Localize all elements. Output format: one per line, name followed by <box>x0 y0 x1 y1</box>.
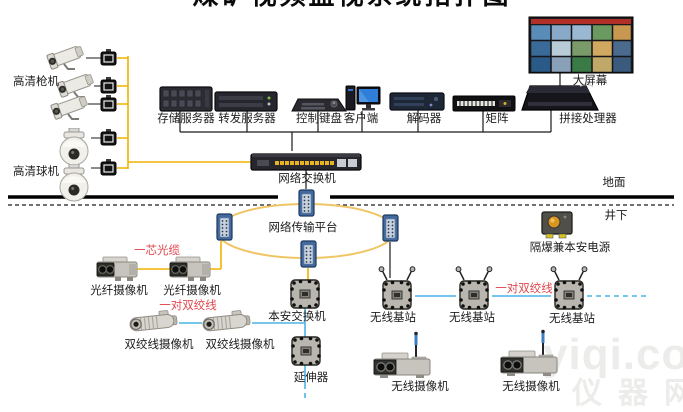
flameproof-power-label: 隔爆兼本安电源 <box>530 242 611 255</box>
wireless-camera-icon <box>372 331 434 383</box>
matrix-label: 矩阵 <box>486 113 509 126</box>
media-converter-icon <box>100 77 117 95</box>
storage-server-label: 存储服务器 <box>157 113 215 126</box>
underground-zone-label: 井下 <box>605 210 628 223</box>
industrial-switch-icon <box>298 189 315 217</box>
wireless-base-station-label: 无线基站 <box>549 313 595 326</box>
hd-bullet-camera-icon <box>48 92 94 122</box>
twisted-pair-camera-label: 双绞线摄像机 <box>206 339 275 352</box>
media-converter-icon <box>100 159 117 177</box>
twisted-pair-cable-label: 一对双绞线 <box>159 300 217 313</box>
wireless-base-station-icon <box>547 266 591 312</box>
hd-bullet-camera-icon <box>44 42 90 72</box>
client-label: 客户端 <box>344 113 379 126</box>
wireless-base-station-icon <box>452 266 496 312</box>
control-keyboard-icon <box>288 95 348 113</box>
control-keyboard-label: 控制键盘 <box>296 113 342 126</box>
hd-dome-camera-icon <box>57 164 91 204</box>
intrinsically-safe-switch-icon <box>287 277 323 311</box>
fiber-camera-icon <box>95 254 139 284</box>
decoder-icon <box>388 90 446 113</box>
hd-dome-camera-icon <box>57 128 91 168</box>
fiber-camera-icon <box>168 254 212 284</box>
hd-dome-camera-label: 高清球机 <box>13 166 59 179</box>
client-pc-icon <box>345 83 381 113</box>
video-wall-icon <box>528 16 634 74</box>
forward-server-icon <box>213 90 279 113</box>
industrial-switch-icon <box>216 213 233 241</box>
fiber-camera-label: 光纤摄像机 <box>163 285 221 298</box>
intrinsically-safe-switch-label: 本安交换机 <box>268 311 326 324</box>
hd-bullet-camera-label: 高清枪机 <box>13 76 59 89</box>
storage-server-icon <box>158 85 214 113</box>
media-converter-icon <box>100 95 117 113</box>
industrial-switch-icon <box>300 240 317 268</box>
ring-platform-label: 网络传输平台 <box>269 222 338 235</box>
wireless-camera-icon <box>499 329 561 381</box>
fiber-cable-label: 一芯光缆 <box>134 245 180 258</box>
wireless-base-station-label: 无线基站 <box>449 312 495 325</box>
forward-server-label: 转发服务器 <box>218 113 276 126</box>
wireless-base-station-label: 无线基站 <box>370 312 416 325</box>
splicing-processor-label: 拼接处理器 <box>559 113 617 126</box>
wireless-camera-label: 无线摄像机 <box>502 381 560 394</box>
network-switch-icon <box>249 150 363 173</box>
wireless-camera-label: 无线摄像机 <box>391 381 449 394</box>
fiber-camera-label: 光纤摄像机 <box>90 285 148 298</box>
flameproof-power-icon <box>540 209 574 239</box>
page-title: 煤矿视频监视系统拓扑图 <box>192 0 511 9</box>
big-screen-label: 大屏幕 <box>573 75 608 88</box>
media-converter-icon <box>100 129 117 147</box>
extender-label: 延伸器 <box>294 372 329 385</box>
twisted-pair-cable-label: 一对双绞线 <box>495 283 553 296</box>
decoder-label: 解码器 <box>407 113 442 126</box>
media-converter-icon <box>100 49 117 67</box>
matrix-icon <box>451 93 517 113</box>
industrial-switch-icon <box>382 214 399 242</box>
extender-icon <box>288 334 324 368</box>
wireless-base-station-icon <box>375 266 419 312</box>
surface-zone-label: 地面 <box>603 177 626 190</box>
twisted-pair-camera-label: 双绞线摄像机 <box>125 339 194 352</box>
network-switch-label: 网络交换机 <box>278 173 336 186</box>
